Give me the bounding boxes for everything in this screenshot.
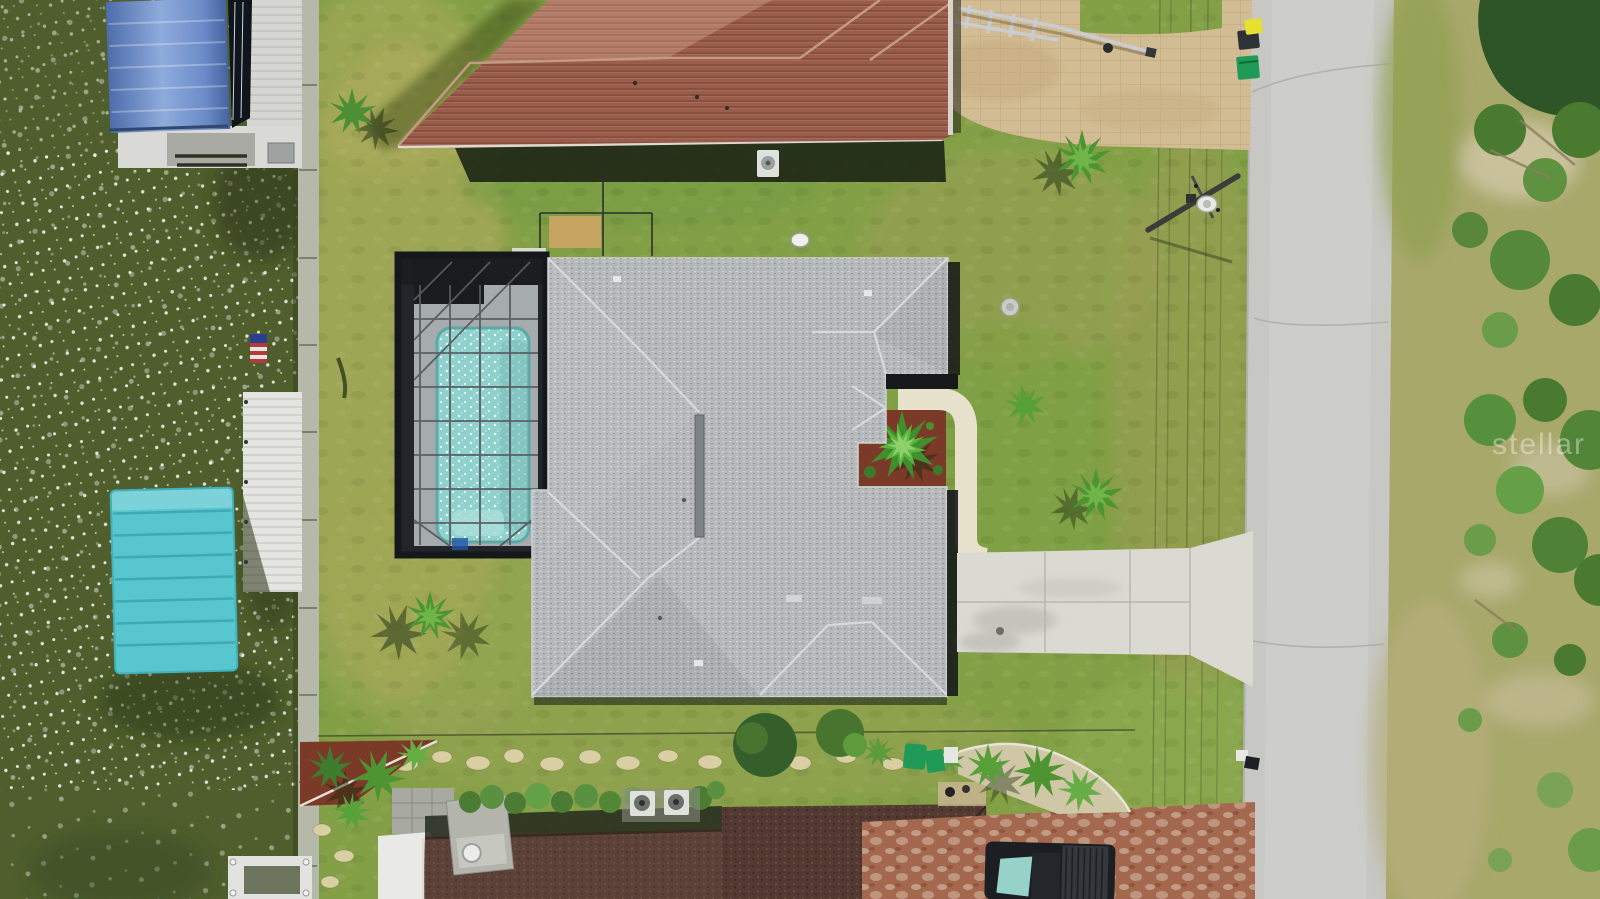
ac-units (622, 788, 700, 822)
satellite-dish (791, 233, 809, 247)
patio-grill (938, 782, 986, 806)
sand-pad (549, 216, 601, 248)
truck-cab-roof (1031, 853, 1060, 899)
pickup-truck (984, 841, 1115, 899)
lanai-shadow (455, 141, 946, 182)
wing-eave-shadow (886, 374, 958, 389)
roof-structure (446, 795, 513, 875)
ridge-vent (695, 415, 704, 537)
green-bin (1236, 55, 1260, 80)
right-fascia (948, 0, 953, 135)
white-box (944, 747, 958, 763)
boat (228, 0, 252, 128)
aerial-property-photo: stellar (0, 0, 1600, 899)
south-eave-shadow (534, 697, 947, 705)
road-center (1264, 0, 1374, 899)
flag-canton (250, 334, 267, 343)
yellow-bin (1244, 18, 1263, 35)
east-wall-shadow-1 (948, 262, 960, 375)
backyard-green-bin (903, 743, 927, 770)
photo-canvas (0, 0, 1600, 899)
roadside-scrub (1370, 0, 1600, 899)
green-bin-2 (925, 749, 946, 773)
pool-enclosure (398, 255, 546, 555)
lift-motor-box (268, 143, 294, 163)
east-wall-shadow-2 (947, 490, 958, 696)
truck-windshield (996, 856, 1032, 897)
